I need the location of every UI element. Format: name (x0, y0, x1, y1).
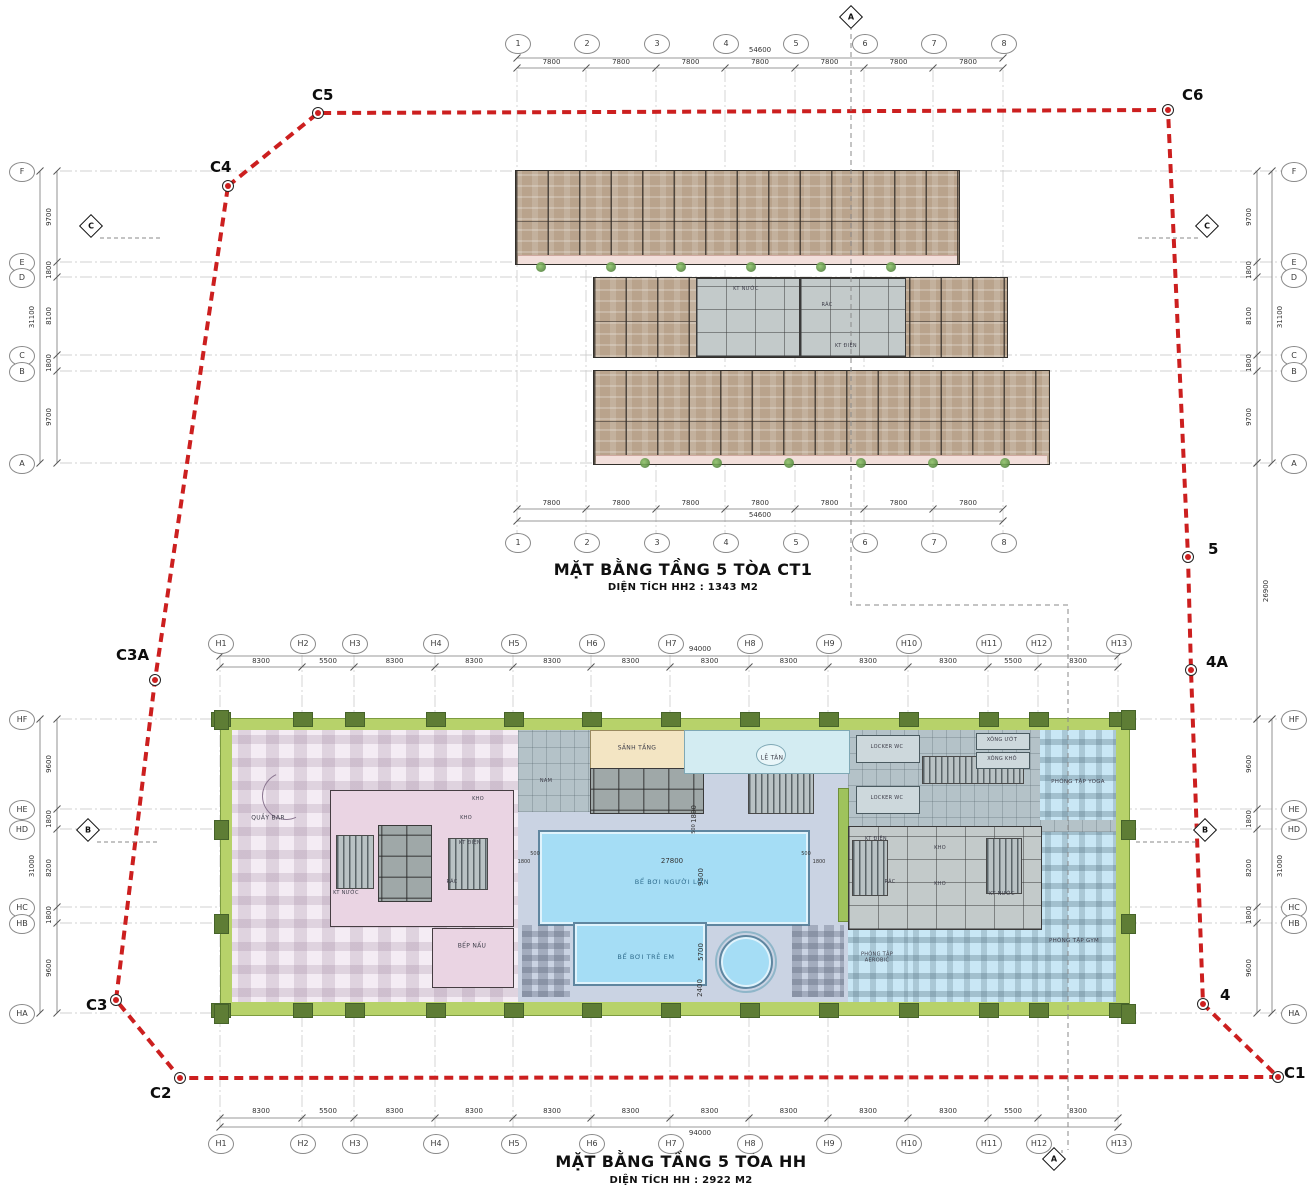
grid-bubble-6: 6 (852, 34, 878, 54)
boundary-point-label-4A: 4A (1206, 653, 1228, 671)
ct1-wing-north (515, 170, 960, 265)
dim-seg: 9600 (45, 755, 53, 773)
hh-pier-bottom (1029, 1003, 1049, 1018)
boundary-point-4 (1197, 998, 1209, 1010)
hh-plan-subtitle: DIỆN TÍCH HH : 2922 M2 (610, 1175, 753, 1186)
hh-stair (748, 772, 814, 814)
grid-bubble-8: 8 (991, 34, 1017, 54)
ct1-plan-subtitle: DIỆN TÍCH HH2 : 1343 M2 (608, 582, 758, 593)
pool-offset-500-west: 500 (530, 851, 540, 857)
gap-dim: 26900 (1262, 580, 1270, 602)
grid-bubble-6: 6 (852, 533, 878, 553)
hh-pier-top (740, 712, 760, 727)
dim-seg: 7800 (959, 499, 977, 507)
grid-bubble-H9: H9 (816, 634, 842, 654)
dim-seg: 7800 (890, 499, 908, 507)
boundary-point-4A (1185, 664, 1197, 676)
dim-total: 31100 (1276, 306, 1284, 328)
dim-seg: 9700 (1245, 408, 1253, 426)
ct1-plan-title: MẶT BẰNG TẦNG 5 TÒA CT1 (554, 560, 813, 579)
hh-pier-west (214, 914, 229, 934)
ct1-kt-nuoc-label: KT NƯỚC (733, 286, 759, 292)
grid-bubble-2: 2 (574, 533, 600, 553)
locker-wc-label-1: LOCKER WC (871, 744, 904, 750)
dim-seg: 1800 (1245, 261, 1253, 279)
dim-seg: 9700 (1245, 208, 1253, 226)
boundary-point-C6 (1162, 104, 1174, 116)
rac-label-east: RÁC (885, 879, 896, 885)
boundary-point-label-C6: C6 (1182, 86, 1203, 104)
grid-bubble-HA: HA (9, 1004, 35, 1024)
tree-icon (676, 262, 686, 272)
hh-pier-bottom (426, 1003, 446, 1018)
nam-label: NAM (540, 778, 552, 784)
grid-bubble-H10: H10 (896, 1134, 922, 1154)
hh-pier-top (979, 712, 999, 727)
dim-seg: 9700 (45, 208, 53, 226)
dim-seg: 1800 (1245, 810, 1253, 828)
dim-seg: 7800 (543, 58, 561, 66)
hh-pier-west (214, 1004, 229, 1024)
hh-yoga-gym-column (1040, 730, 1116, 1002)
hh-round-pool (719, 935, 773, 989)
grid-bubble-B: B (9, 362, 35, 382)
boundary-point-label-C3A: C3A (116, 646, 149, 664)
section-letter: B (1198, 823, 1213, 838)
ct1-rac-label: RÁC (822, 302, 833, 308)
yoga-label: PHÒNG TẬP YOGA (1051, 779, 1105, 785)
boundary-point-label-C4: C4 (210, 158, 231, 176)
dim-seg: 8300 (780, 1107, 798, 1115)
grid-bubble-D: D (1281, 268, 1307, 288)
kids-pool-dim: 5700 (697, 943, 705, 961)
hh-pier-bottom (740, 1003, 760, 1018)
grid-bubble-H11: H11 (976, 1134, 1002, 1154)
grid-bubble-HD: HD (1281, 820, 1307, 840)
dim-total: 31100 (28, 306, 36, 328)
dim-total: 31000 (1276, 855, 1284, 877)
boundary-point-5 (1182, 551, 1194, 563)
kho-label-east-1: KHO (934, 845, 946, 851)
grid-bubble-HE: HE (9, 800, 35, 820)
dim-seg: 5500 (319, 1107, 337, 1115)
gym-label: PHÒNG TẬP GYM (1049, 938, 1099, 944)
hh-pier-bottom (661, 1003, 681, 1018)
sanh-tang-label: SẢNH TẦNG (618, 745, 656, 752)
grid-bubble-2: 2 (574, 34, 600, 54)
hh-loungers-east (792, 925, 844, 997)
dim-seg: 9600 (45, 959, 53, 977)
boundary-point-C5 (312, 107, 324, 119)
dim-total: 54600 (749, 511, 771, 519)
grid-bubble-5: 5 (783, 533, 809, 553)
dim-seg: 8100 (1245, 307, 1253, 325)
bep-nau-label: BẾP NẤU (458, 943, 487, 950)
grid-bubble-H7: H7 (658, 1134, 684, 1154)
dim-seg: 8300 (939, 1107, 957, 1115)
tree-icon (856, 458, 866, 468)
tree-icon (746, 262, 756, 272)
dim-seg: 5500 (319, 657, 337, 665)
boundary-point-C4 (222, 180, 234, 192)
pool-offset-1800-east: 1800 (813, 859, 826, 865)
grid-bubble-4: 4 (713, 533, 739, 553)
tree-icon (816, 262, 826, 272)
hh-pier-bottom (899, 1003, 919, 1018)
site-plan-canvas: KT NƯỚC RÁC KT ĐIỆN QUẦY BAR BẾP NẤU KHO… (0, 0, 1311, 1196)
dim-seg: 8300 (252, 657, 270, 665)
xong-kho-label: XÔNG KHÔ (987, 756, 1017, 762)
dim-seg: 8300 (859, 1107, 877, 1115)
dim-total: 54600 (749, 46, 771, 54)
boundary-point-label-5: 5 (1208, 540, 1218, 558)
hh-pier-bottom (582, 1003, 602, 1018)
boundary-point-C1 (1272, 1071, 1284, 1083)
dim-total: 94000 (689, 1129, 711, 1137)
grid-bubble-1: 1 (505, 533, 531, 553)
grid-bubble-HA: HA (1281, 1004, 1307, 1024)
dim-seg: 7800 (682, 58, 700, 66)
grid-bubble-H10: H10 (896, 634, 922, 654)
hh-pier-east (1121, 914, 1136, 934)
hh-pier-top (899, 712, 919, 727)
grid-bubble-3: 3 (644, 533, 670, 553)
dim-seg: 1800 (1245, 354, 1253, 372)
grid-bubble-H3: H3 (342, 634, 368, 654)
dim-seg: 8300 (622, 657, 640, 665)
dim-seg: 8300 (252, 1107, 270, 1115)
grid-bubble-H1: H1 (208, 634, 234, 654)
hh-pier-top (582, 712, 602, 727)
grid-bubble-HF: HF (9, 710, 35, 730)
grid-bubble-F: F (9, 162, 35, 182)
dim-seg: 5500 (1004, 657, 1022, 665)
hh-restaurant-elevators (378, 825, 432, 902)
hh-pier-bottom (345, 1003, 365, 1018)
dim-seg: 9600 (1245, 959, 1253, 977)
kids-pool-edge-dim: 2400 (696, 979, 704, 997)
grid-bubble-7: 7 (921, 533, 947, 553)
grid-bubble-H3: H3 (342, 1134, 368, 1154)
kho-label-b: KHO (460, 815, 472, 821)
hh-pier-west (214, 710, 229, 730)
dim-seg: 8300 (543, 657, 561, 665)
kids-pool-label: BỂ BƠI TRẺ EM (617, 953, 674, 961)
hh-east-core-stair-1 (852, 840, 888, 896)
grid-bubble-HF: HF (1281, 710, 1307, 730)
grid-bubble-H2: H2 (290, 1134, 316, 1154)
hh-pier-top (1029, 712, 1049, 727)
dim-seg: 5500 (1004, 1107, 1022, 1115)
section-letter: B (81, 823, 96, 838)
grid-bubble-3: 3 (644, 34, 670, 54)
hh-elevator-core (590, 768, 704, 814)
grid-bubble-H8: H8 (737, 634, 763, 654)
pool-offset-1800-west: 1800 (518, 859, 531, 865)
grid-bubble-HB: HB (9, 914, 35, 934)
hh-pier-bottom (293, 1003, 313, 1018)
tree-icon (928, 458, 938, 468)
dim-seg: 8300 (622, 1107, 640, 1115)
grid-bubble-H1: H1 (208, 1134, 234, 1154)
hh-changing-rooms (518, 730, 590, 812)
grid-bubble-5: 5 (783, 34, 809, 54)
hh-aerobic-room (848, 930, 908, 1002)
boundary-point-label-C2: C2 (150, 1084, 171, 1102)
hh-pier-east (1121, 1004, 1136, 1024)
rac-label-west: RÁC (447, 879, 458, 885)
grid-bubble-1: 1 (505, 34, 531, 54)
dim-seg: 7800 (751, 58, 769, 66)
grid-bubble-H13: H13 (1106, 1134, 1132, 1154)
boundary-point-label-C1: C1 (1284, 1064, 1305, 1082)
quay-bar-label: QUẦY BAR (251, 815, 285, 822)
grid-bubble-D: D (9, 268, 35, 288)
section-letter: C (84, 219, 99, 234)
dim-seg: 7800 (821, 499, 839, 507)
dim-seg: 7800 (959, 58, 977, 66)
kt-nuoc-label-east: KT NƯỚC (989, 891, 1015, 897)
ct1-wing-south (593, 370, 1050, 465)
hh-pier-east (1121, 820, 1136, 840)
dim-seg: 8300 (543, 1107, 561, 1115)
aerobic-label: PHÒNG TẬP AEROBIC (848, 952, 906, 964)
section-letter: A (1047, 1152, 1062, 1167)
tree-icon (712, 458, 722, 468)
grid-bubble-H9: H9 (816, 1134, 842, 1154)
grid-bubble-H13: H13 (1106, 634, 1132, 654)
grid-bubble-H2: H2 (290, 634, 316, 654)
grid-bubble-H11: H11 (976, 634, 1002, 654)
grid-bubble-H12: H12 (1026, 634, 1052, 654)
hh-pier-top (426, 712, 446, 727)
hh-pier-bottom (819, 1003, 839, 1018)
dim-seg: 1800 (45, 906, 53, 924)
dim-seg: 7800 (612, 58, 630, 66)
dim-total: 94000 (689, 645, 711, 653)
tree-icon (640, 458, 650, 468)
grid-bubble-H8: H8 (737, 1134, 763, 1154)
dim-seg: 7800 (612, 499, 630, 507)
hh-fitness-divider (1040, 820, 1116, 832)
hh-pier-top (293, 712, 313, 727)
pool-offset-500-top: 500 (691, 824, 697, 834)
dim-total: 31000 (28, 855, 36, 877)
grid-bubble-7: 7 (921, 34, 947, 54)
dim-seg: 1800 (1245, 906, 1253, 924)
grid-bubble-H5: H5 (501, 634, 527, 654)
dim-seg: 8300 (859, 657, 877, 665)
hh-pier-east (1121, 710, 1136, 730)
boundary-point-label-C3: C3 (86, 996, 107, 1014)
hh-pier-top (819, 712, 839, 727)
hh-kitchen-room (432, 928, 514, 988)
kho-label-a: KHO (472, 796, 484, 802)
grid-bubble-HB: HB (1281, 914, 1307, 934)
dim-seg: 7800 (890, 58, 908, 66)
hh-east-core-stair-2 (986, 838, 1022, 894)
hh-pier-top (661, 712, 681, 727)
hh-loungers-west (522, 925, 570, 997)
dim-seg: 1800 (45, 810, 53, 828)
dim-seg: 9600 (1245, 755, 1253, 773)
tree-icon (886, 262, 896, 272)
hh-gym-floor (908, 930, 1040, 1002)
grid-bubble-B: B (1281, 362, 1307, 382)
boundary-point-label-C5: C5 (312, 86, 333, 104)
grid-bubble-H7: H7 (658, 634, 684, 654)
tree-icon (606, 262, 616, 272)
hh-restaurant-stair-west (336, 835, 374, 889)
pool-dim-length: 27800 (661, 857, 683, 865)
section-letter: C (1200, 219, 1215, 234)
grid-bubble-H6: H6 (579, 634, 605, 654)
grid-bubble-A: A (9, 454, 35, 474)
tree-icon (784, 458, 794, 468)
grid-bubble-A: A (1281, 454, 1307, 474)
dim-seg: 7800 (821, 58, 839, 66)
section-letter: A (844, 10, 859, 25)
grid-bubble-F: F (1281, 162, 1307, 182)
grid-bubble-H4: H4 (423, 1134, 449, 1154)
dim-seg: 8300 (701, 657, 719, 665)
grid-bubble-HE: HE (1281, 800, 1307, 820)
grid-bubble-HD: HD (9, 820, 35, 840)
dim-seg: 8300 (465, 1107, 483, 1115)
dim-seg: 8200 (45, 859, 53, 877)
kt-nuoc-label-west: KT NƯỚC (333, 890, 359, 896)
dim-seg: 8300 (939, 657, 957, 665)
hh-pier-bottom (979, 1003, 999, 1018)
dim-seg: 1800 (45, 261, 53, 279)
hh-pier-top (345, 712, 365, 727)
dim-seg: 8100 (45, 307, 53, 325)
kho-label-east-2: KHO (934, 881, 946, 887)
grid-bubble-8: 8 (991, 533, 1017, 553)
dim-seg: 8300 (780, 657, 798, 665)
boundary-point-C3A (149, 674, 161, 686)
tree-icon (1000, 458, 1010, 468)
pool-offset-500-east: 500 (801, 851, 811, 857)
dim-seg: 7800 (682, 499, 700, 507)
dim-seg: 1800 (45, 354, 53, 372)
dim-seg: 8300 (701, 1107, 719, 1115)
boundary-point-C3 (110, 994, 122, 1006)
dim-seg: 8300 (1069, 657, 1087, 665)
kt-dien-label-west: KT ĐIỆN (459, 840, 481, 846)
hh-plan-title: MẶT BẰNG TẦNG 5 TÒA HH (555, 1152, 806, 1171)
kt-dien-label-east: KT ĐIỆN (865, 836, 887, 842)
hh-pier-west (214, 820, 229, 840)
dim-seg: 9700 (45, 408, 53, 426)
hh-pier-top (504, 712, 524, 727)
grid-bubble-4: 4 (713, 34, 739, 54)
grid-bubble-H6: H6 (579, 1134, 605, 1154)
dim-seg: 8300 (465, 657, 483, 665)
tree-icon (536, 262, 546, 272)
xong-uot-label: XÔNG ƯỚT (987, 737, 1018, 743)
pool-offset-1800-top: 1800 (690, 805, 698, 823)
grid-bubble-H4: H4 (423, 634, 449, 654)
dim-seg: 8300 (1069, 1107, 1087, 1115)
dim-seg: 8300 (386, 657, 404, 665)
grid-bubble-H5: H5 (501, 1134, 527, 1154)
dim-seg: 8300 (386, 1107, 404, 1115)
locker-wc-label-2: LOCKER WC (871, 795, 904, 801)
boundary-point-C2 (174, 1072, 186, 1084)
hh-pier-bottom (504, 1003, 524, 1018)
dim-seg: 8200 (1245, 859, 1253, 877)
boundary-point-label-4: 4 (1220, 986, 1230, 1004)
ct1-kt-dien-label: KT ĐIỆN (835, 343, 857, 349)
adult-pool-label: BỂ BƠI NGƯỜI LỚN (635, 878, 709, 886)
le-tan-label: LỄ TÂN (761, 755, 784, 762)
dim-seg: 7800 (543, 499, 561, 507)
dim-seg: 7800 (751, 499, 769, 507)
